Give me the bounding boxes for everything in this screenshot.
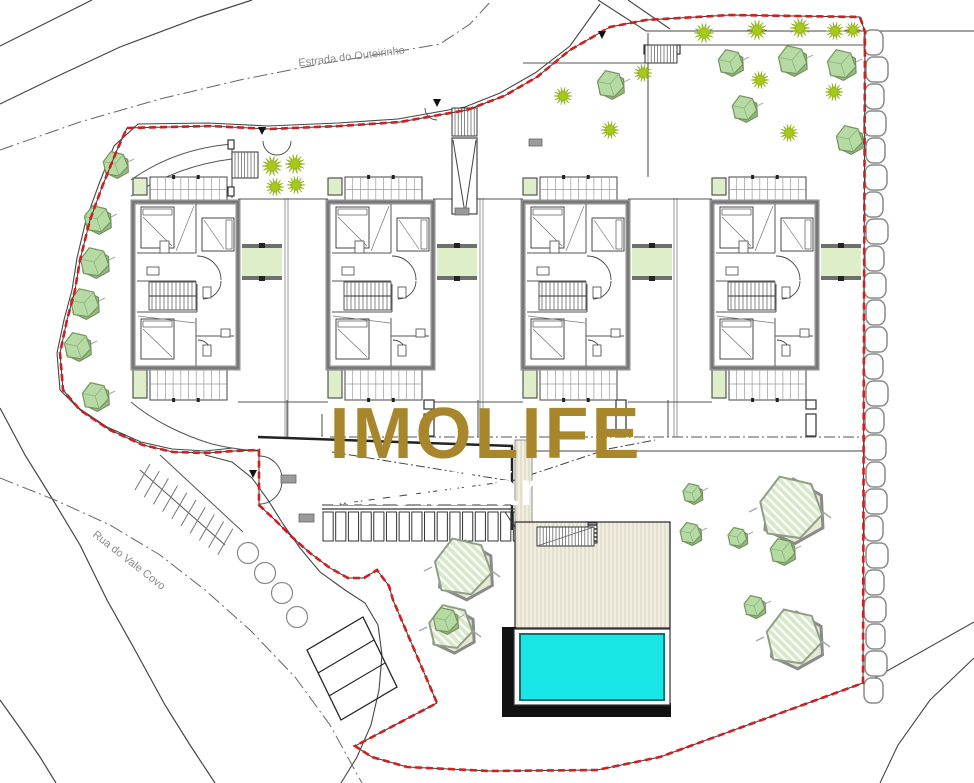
house-unit-3: [523, 175, 672, 402]
tree-hatched: [756, 610, 830, 669]
tree-solid: [718, 50, 749, 77]
tree-solid: [827, 50, 862, 81]
shrub-star: [825, 83, 843, 101]
shrub-star: [287, 176, 305, 194]
road-label-estrada: Estrada do Outeirinho: [298, 45, 406, 70]
shrub-star: [790, 18, 810, 37]
shrub-star: [751, 71, 769, 89]
pool-water: [520, 634, 664, 700]
site-plan-svg: Estrada do OuteirinhoRua do Vale CovoImo…: [0, 0, 974, 783]
tree-solid: [70, 289, 105, 320]
house-unit-1: [133, 175, 282, 402]
tree-solid: [597, 71, 630, 100]
tree-solid: [82, 383, 115, 412]
watermark: ImobiliáriaIMOLIFE: [330, 394, 643, 515]
tree-solid: [683, 484, 708, 505]
shrub-star: [826, 22, 844, 40]
watermark-imolife: IMOLIFE: [330, 394, 643, 474]
site-plan-drawing: Estrada do OuteirinhoRua do Vale CovoImo…: [0, 0, 974, 783]
shrub-star: [262, 156, 282, 175]
house-unit-4: [712, 175, 861, 402]
shrub-star: [747, 20, 767, 39]
tree-solid: [680, 523, 707, 546]
shrub-star: [694, 23, 714, 42]
tree-hatched: [749, 477, 831, 544]
tree-solid: [728, 528, 753, 549]
stone-wall: [864, 30, 888, 703]
shrub-star: [266, 178, 284, 196]
shrub-star: [601, 121, 619, 139]
tree-solid: [80, 248, 115, 279]
rotated-parking: [307, 617, 397, 720]
swimming-pool: [502, 627, 671, 717]
shrub-star: [634, 64, 652, 82]
tree-hatched: [424, 539, 500, 600]
shrub-star: [285, 154, 305, 173]
tree-solid: [64, 333, 97, 362]
tree-solid: [732, 96, 763, 123]
parking-stripes: [135, 455, 243, 555]
tree-solid: [84, 206, 117, 235]
tree-solid: [744, 596, 771, 619]
road-label-rua: Rua do Vale Covo: [90, 529, 167, 593]
shrub-star: [845, 22, 861, 38]
tree-solid: [778, 46, 813, 77]
shrub-star: [780, 124, 798, 142]
shrub-star: [554, 87, 572, 105]
v-ramp: [452, 138, 477, 214]
stepping-circles: [238, 543, 308, 628]
